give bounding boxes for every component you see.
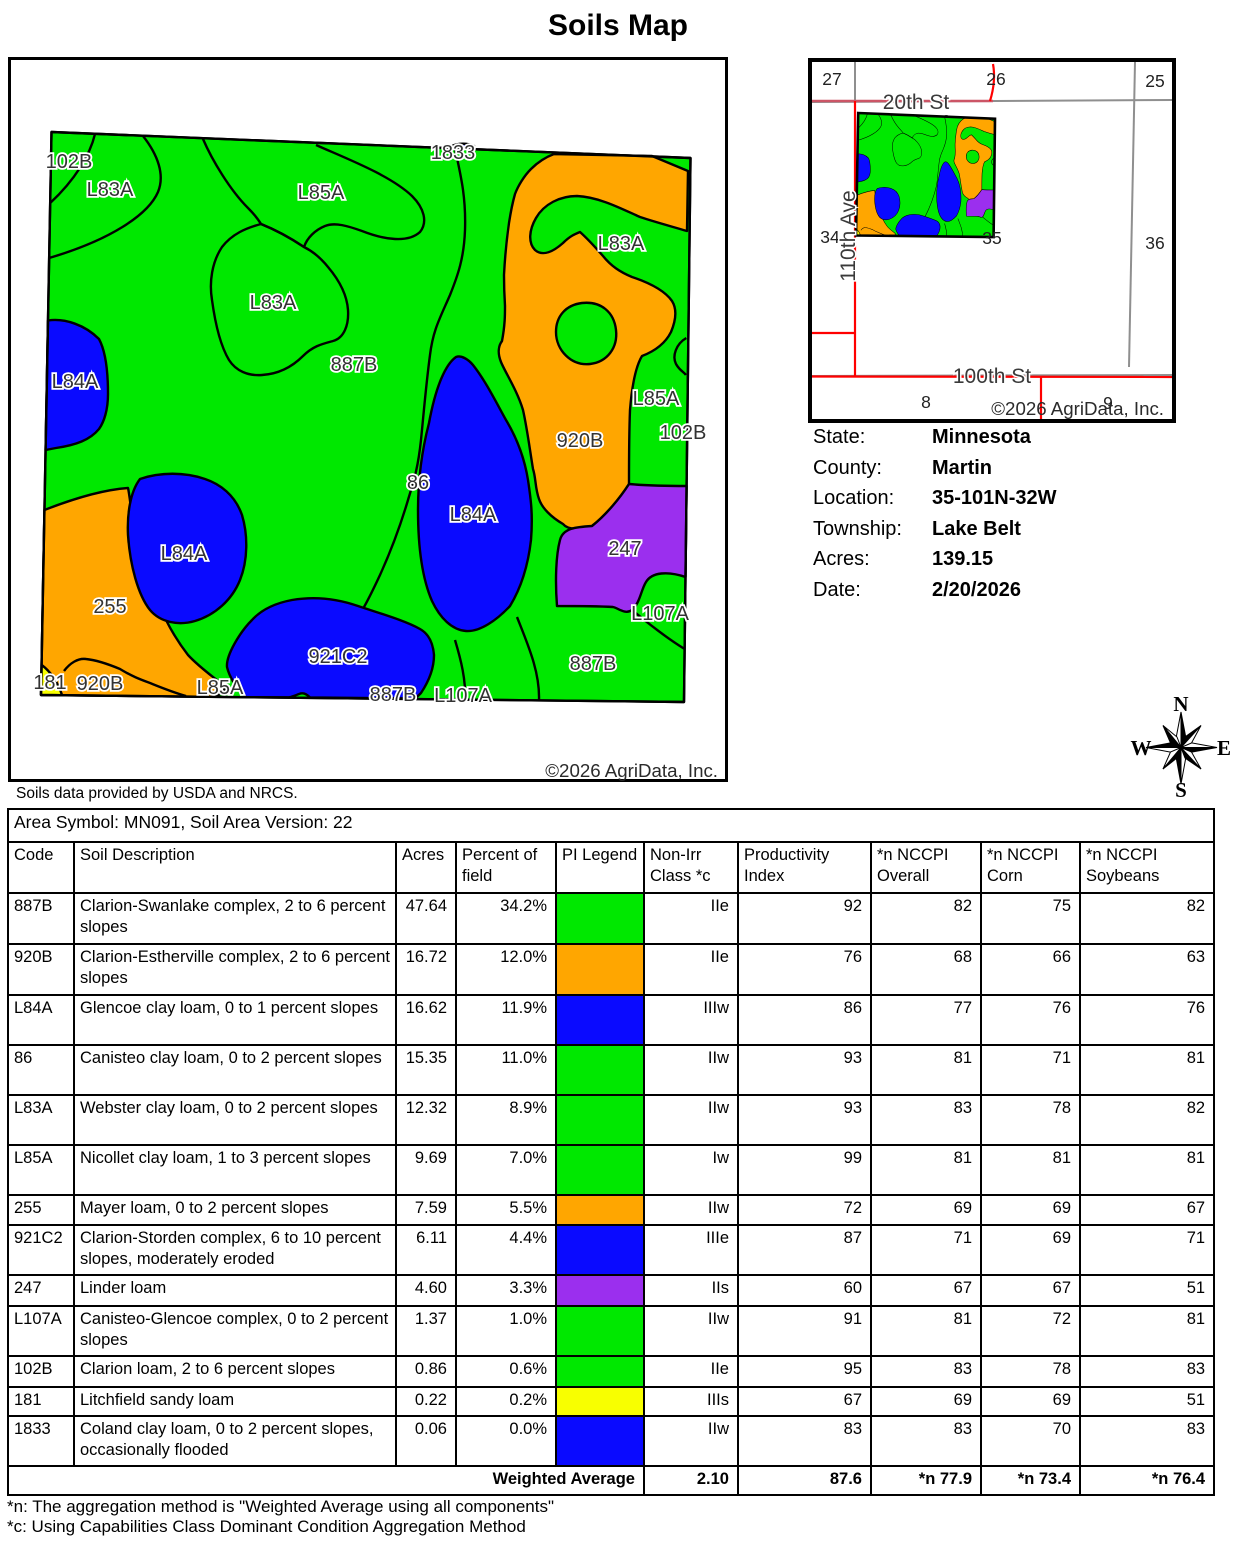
svg-text:L83A: L83A xyxy=(250,292,297,314)
svg-text:887B: 887B xyxy=(570,653,617,675)
svg-text:255: 255 xyxy=(93,596,126,618)
svg-text:L83A: L83A xyxy=(598,233,645,255)
svg-text:L83A: L83A xyxy=(87,179,134,201)
svg-text:86: 86 xyxy=(407,472,429,494)
svg-text:102B: 102B xyxy=(660,422,707,444)
svg-text:102B: 102B xyxy=(46,151,93,173)
svg-text:L107A: L107A xyxy=(434,685,492,707)
svg-text:L84A: L84A xyxy=(161,543,208,565)
svg-text:L85A: L85A xyxy=(298,182,345,204)
svg-text:35: 35 xyxy=(982,228,1001,248)
svg-text:920B: 920B xyxy=(77,673,124,695)
svg-text:L84A: L84A xyxy=(450,504,497,526)
svg-text:20th St: 20th St xyxy=(883,91,950,114)
svg-text:1833: 1833 xyxy=(431,142,476,164)
svg-text:S: S xyxy=(1175,778,1187,802)
svg-text:920B: 920B xyxy=(557,430,604,452)
svg-text:L85A: L85A xyxy=(197,677,244,699)
svg-text:887B: 887B xyxy=(370,684,417,706)
svg-text:8: 8 xyxy=(921,392,931,412)
svg-text:L85A: L85A xyxy=(633,388,680,410)
svg-text:N: N xyxy=(1173,692,1188,716)
svg-text:100th St: 100th St xyxy=(953,365,1031,388)
svg-text:247: 247 xyxy=(608,538,641,560)
svg-text:25: 25 xyxy=(1145,71,1164,91)
svg-text:921C2: 921C2 xyxy=(309,646,368,668)
svg-text:26: 26 xyxy=(986,69,1005,89)
svg-text:887B: 887B xyxy=(331,354,378,376)
svg-text:©2026 AgriData, Inc.: ©2026 AgriData, Inc. xyxy=(991,398,1164,419)
svg-text:W: W xyxy=(1131,736,1152,760)
svg-text:36: 36 xyxy=(1145,233,1164,253)
svg-text:E: E xyxy=(1217,736,1231,760)
svg-text:L84A: L84A xyxy=(52,371,99,393)
svg-text:©2026 AgriData, Inc.: ©2026 AgriData, Inc. xyxy=(545,760,718,781)
svg-text:27: 27 xyxy=(822,69,841,89)
svg-text:181: 181 xyxy=(33,672,66,694)
svg-text:110th Ave: 110th Ave xyxy=(837,190,860,281)
svg-text:L107A: L107A xyxy=(631,603,689,625)
